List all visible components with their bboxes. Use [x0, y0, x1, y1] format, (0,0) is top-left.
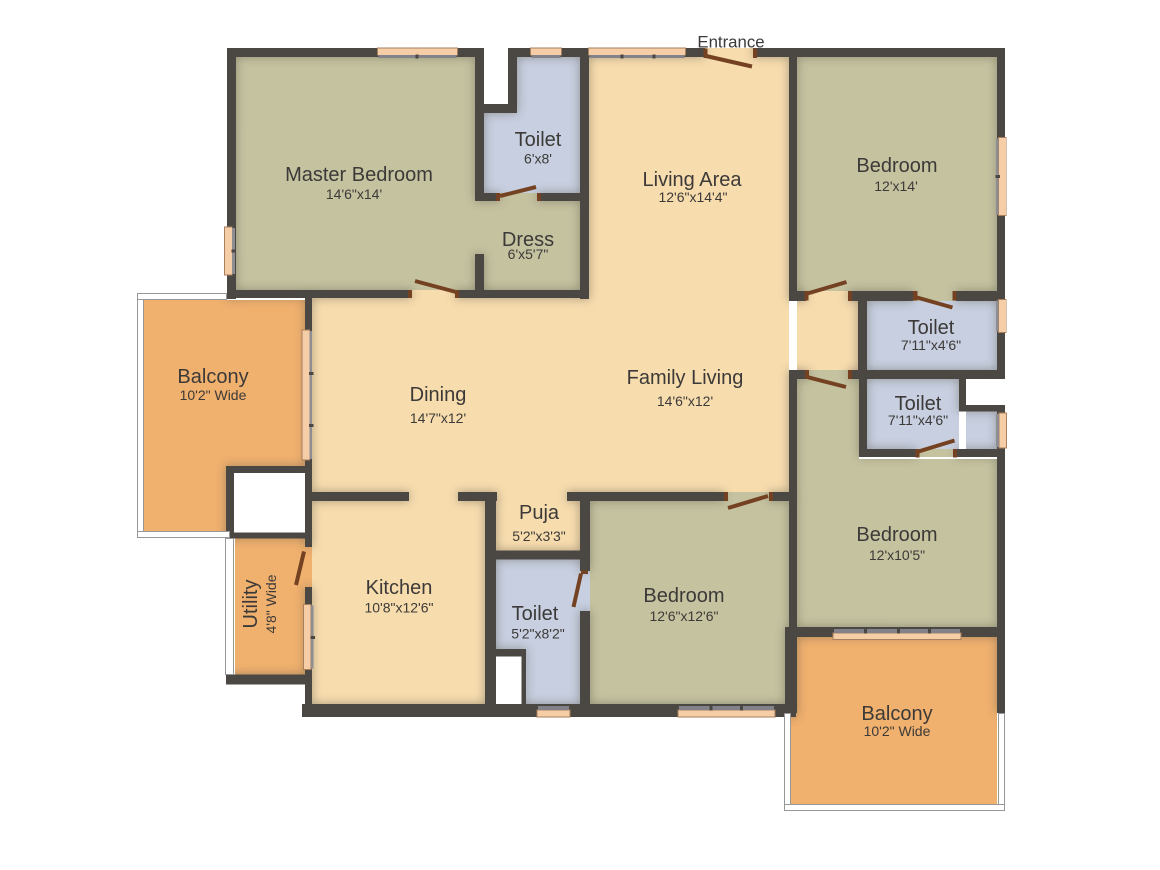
- svg-text:Toilet: Toilet: [908, 317, 955, 339]
- svg-text:Bedroom: Bedroom: [856, 524, 937, 546]
- svg-text:Family Living: Family Living: [627, 367, 744, 389]
- svg-text:Living Area: Living Area: [643, 169, 743, 191]
- svg-text:5'2"x3'3": 5'2"x3'3": [512, 528, 565, 544]
- svg-text:7'11"x4'6": 7'11"x4'6": [901, 337, 961, 353]
- svg-text:Dining: Dining: [410, 384, 467, 406]
- svg-text:10'8"x12'6": 10'8"x12'6": [364, 600, 433, 616]
- svg-text:6'x8': 6'x8': [524, 151, 552, 167]
- svg-text:14'7"x12': 14'7"x12': [410, 410, 466, 426]
- svg-text:Balcony: Balcony: [861, 703, 932, 725]
- svg-text:Puja: Puja: [519, 502, 560, 524]
- svg-text:14'6"x14': 14'6"x14': [326, 186, 382, 202]
- svg-text:Toilet: Toilet: [515, 129, 562, 151]
- svg-text:Master Bedroom: Master Bedroom: [285, 164, 433, 186]
- svg-text:Entrance: Entrance: [697, 33, 764, 52]
- svg-text:12'6"x12'6": 12'6"x12'6": [649, 608, 718, 624]
- svg-text:14'6"x12': 14'6"x12': [657, 393, 713, 409]
- svg-text:12'x14': 12'x14': [874, 178, 918, 194]
- svg-text:7'11"x4'6": 7'11"x4'6": [888, 412, 948, 428]
- svg-text:Utility: Utility: [240, 580, 262, 629]
- svg-text:12'x10'5": 12'x10'5": [869, 547, 925, 563]
- svg-text:Kitchen: Kitchen: [366, 577, 433, 599]
- svg-text:Bedroom: Bedroom: [856, 155, 937, 177]
- svg-text:6'x5'7": 6'x5'7": [508, 246, 549, 262]
- svg-text:12'6"x14'4": 12'6"x14'4": [658, 189, 727, 205]
- svg-text:10'2" Wide: 10'2" Wide: [180, 387, 247, 403]
- svg-text:5'2"x8'2": 5'2"x8'2": [511, 626, 564, 642]
- svg-text:4'8" Wide: 4'8" Wide: [263, 574, 279, 633]
- svg-text:Balcony: Balcony: [177, 366, 248, 388]
- svg-text:10'2" Wide: 10'2" Wide: [864, 723, 931, 739]
- svg-text:Bedroom: Bedroom: [643, 585, 724, 607]
- svg-text:Toilet: Toilet: [512, 603, 559, 625]
